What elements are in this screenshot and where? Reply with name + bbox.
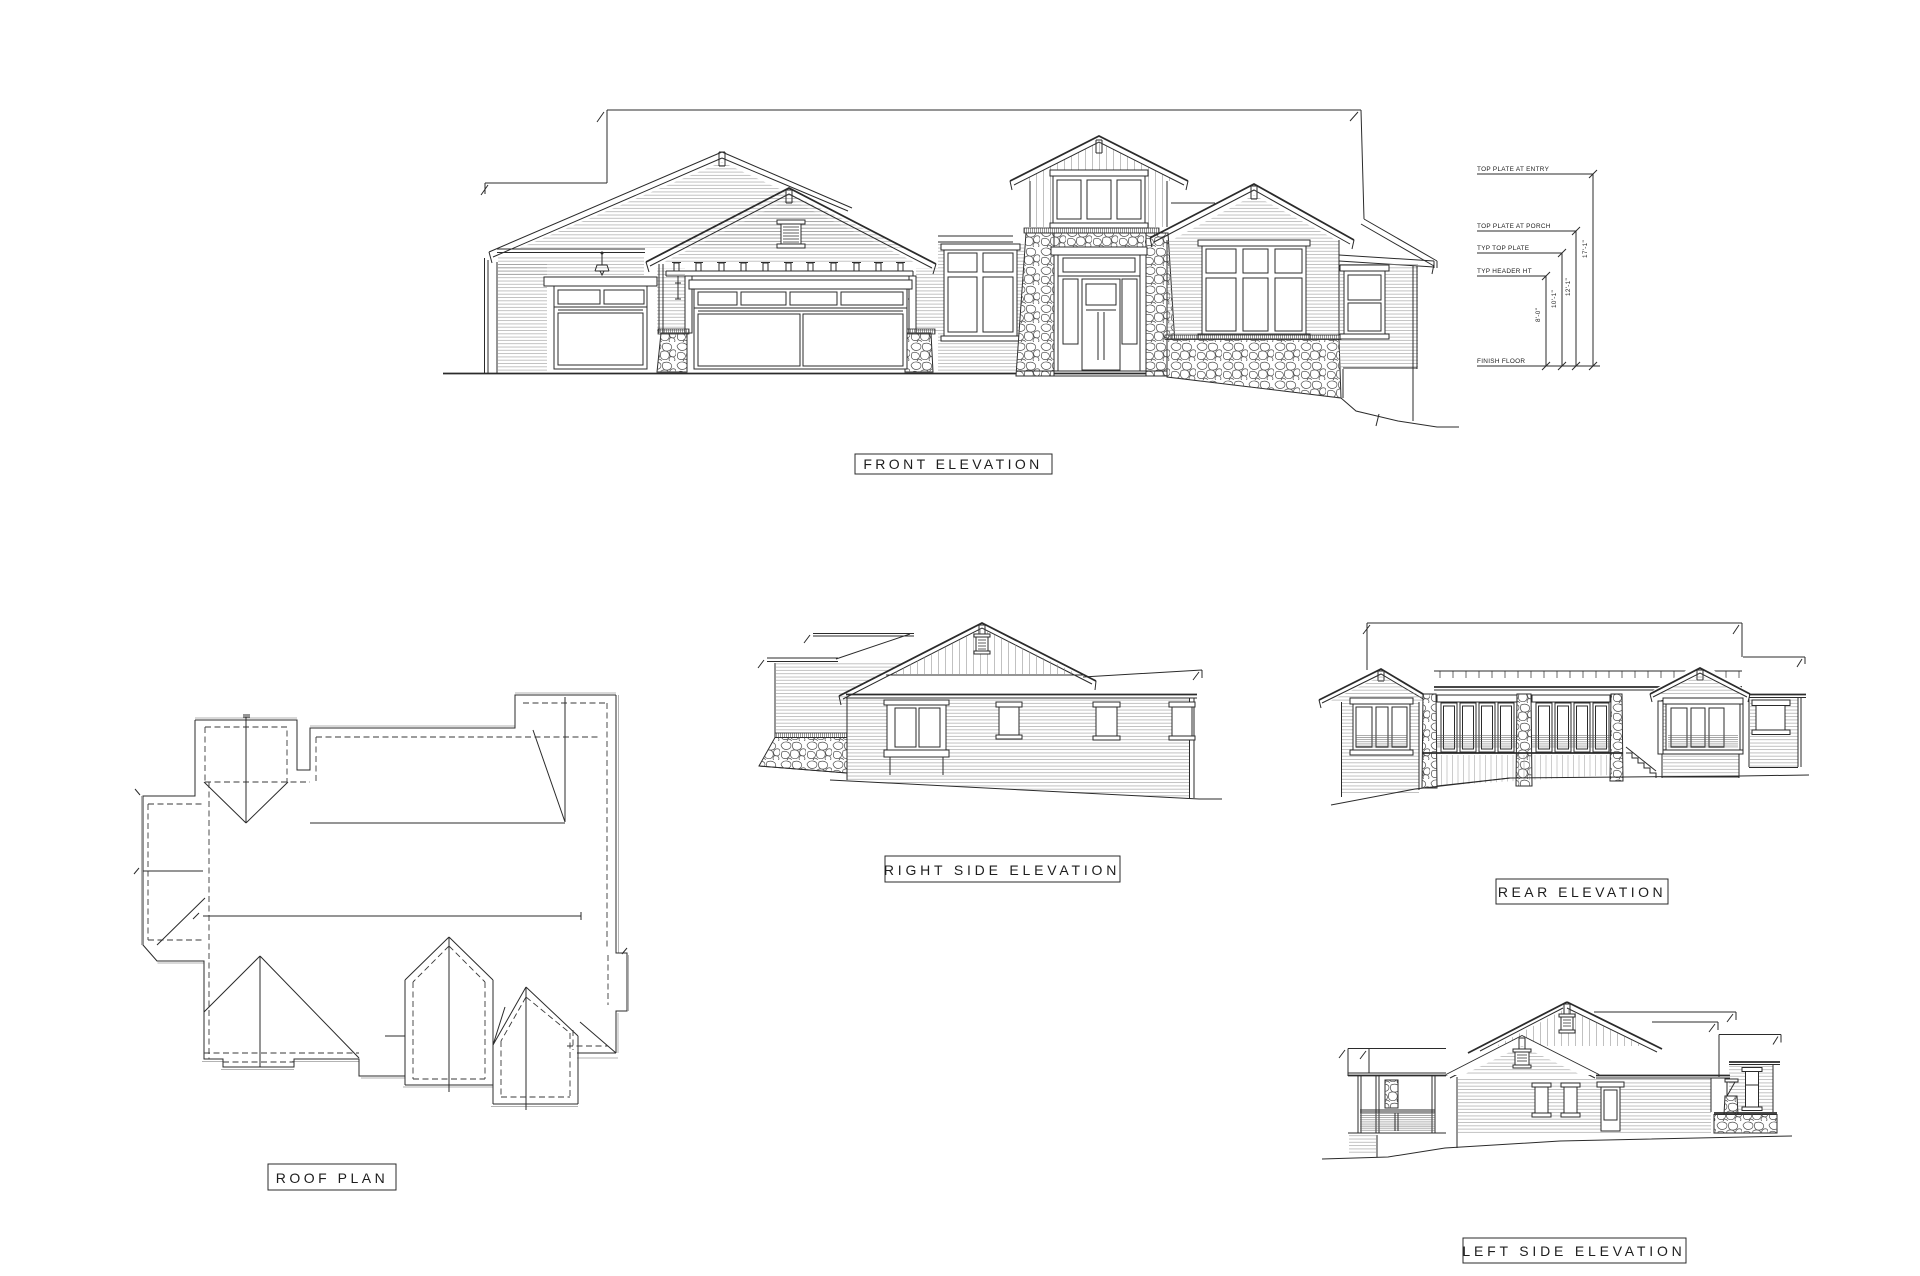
svg-text:TOP PLATE AT PORCH: TOP PLATE AT PORCH [1477,223,1551,230]
svg-text:17'-1": 17'-1" [1582,240,1589,258]
svg-text:RIGHT SIDE ELEVATION: RIGHT SIDE ELEVATION [884,862,1120,878]
svg-text:8'-0": 8'-0" [1535,308,1542,322]
svg-text:REAR ELEVATION: REAR ELEVATION [1498,884,1666,900]
svg-text:ROOF PLAN: ROOF PLAN [276,1170,388,1186]
svg-text:TYP HEADER HT: TYP HEADER HT [1477,268,1532,275]
svg-text:FINISH FLOOR: FINISH FLOOR [1477,358,1525,365]
svg-text:FRONT ELEVATION: FRONT ELEVATION [863,456,1042,472]
svg-text:LEFT SIDE ELEVATION: LEFT SIDE ELEVATION [1462,1243,1685,1259]
svg-text:12'-1": 12'-1" [1565,278,1572,296]
svg-text:10'-1": 10'-1" [1551,290,1558,308]
svg-text:TOP PLATE AT ENTRY: TOP PLATE AT ENTRY [1477,166,1550,173]
svg-text:TYP TOP PLATE: TYP TOP PLATE [1477,245,1529,252]
